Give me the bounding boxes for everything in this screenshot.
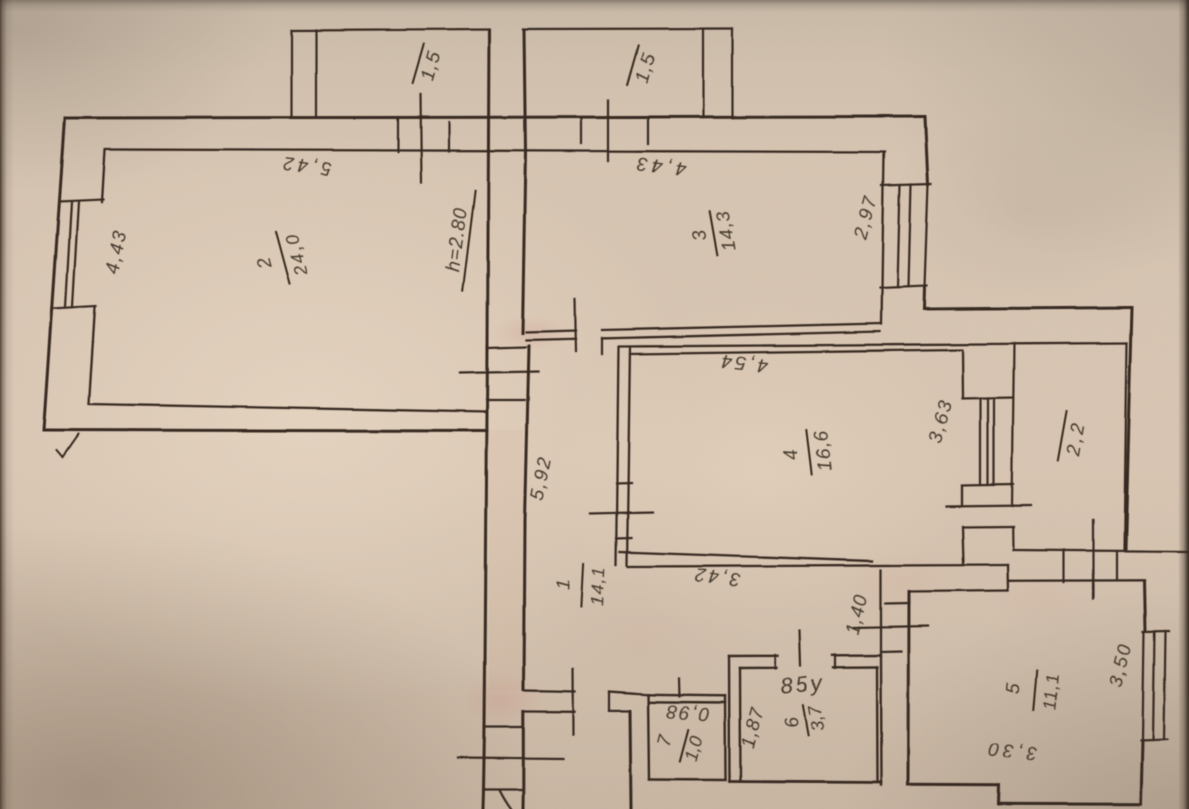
svg-text:11,1: 11,1 bbox=[1039, 672, 1062, 711]
svg-text:14,1: 14,1 bbox=[587, 566, 609, 606]
svg-text:85у: 85у bbox=[780, 670, 827, 700]
svg-text:0,98: 0,98 bbox=[664, 700, 711, 725]
svg-text:1: 1 bbox=[553, 578, 575, 590]
